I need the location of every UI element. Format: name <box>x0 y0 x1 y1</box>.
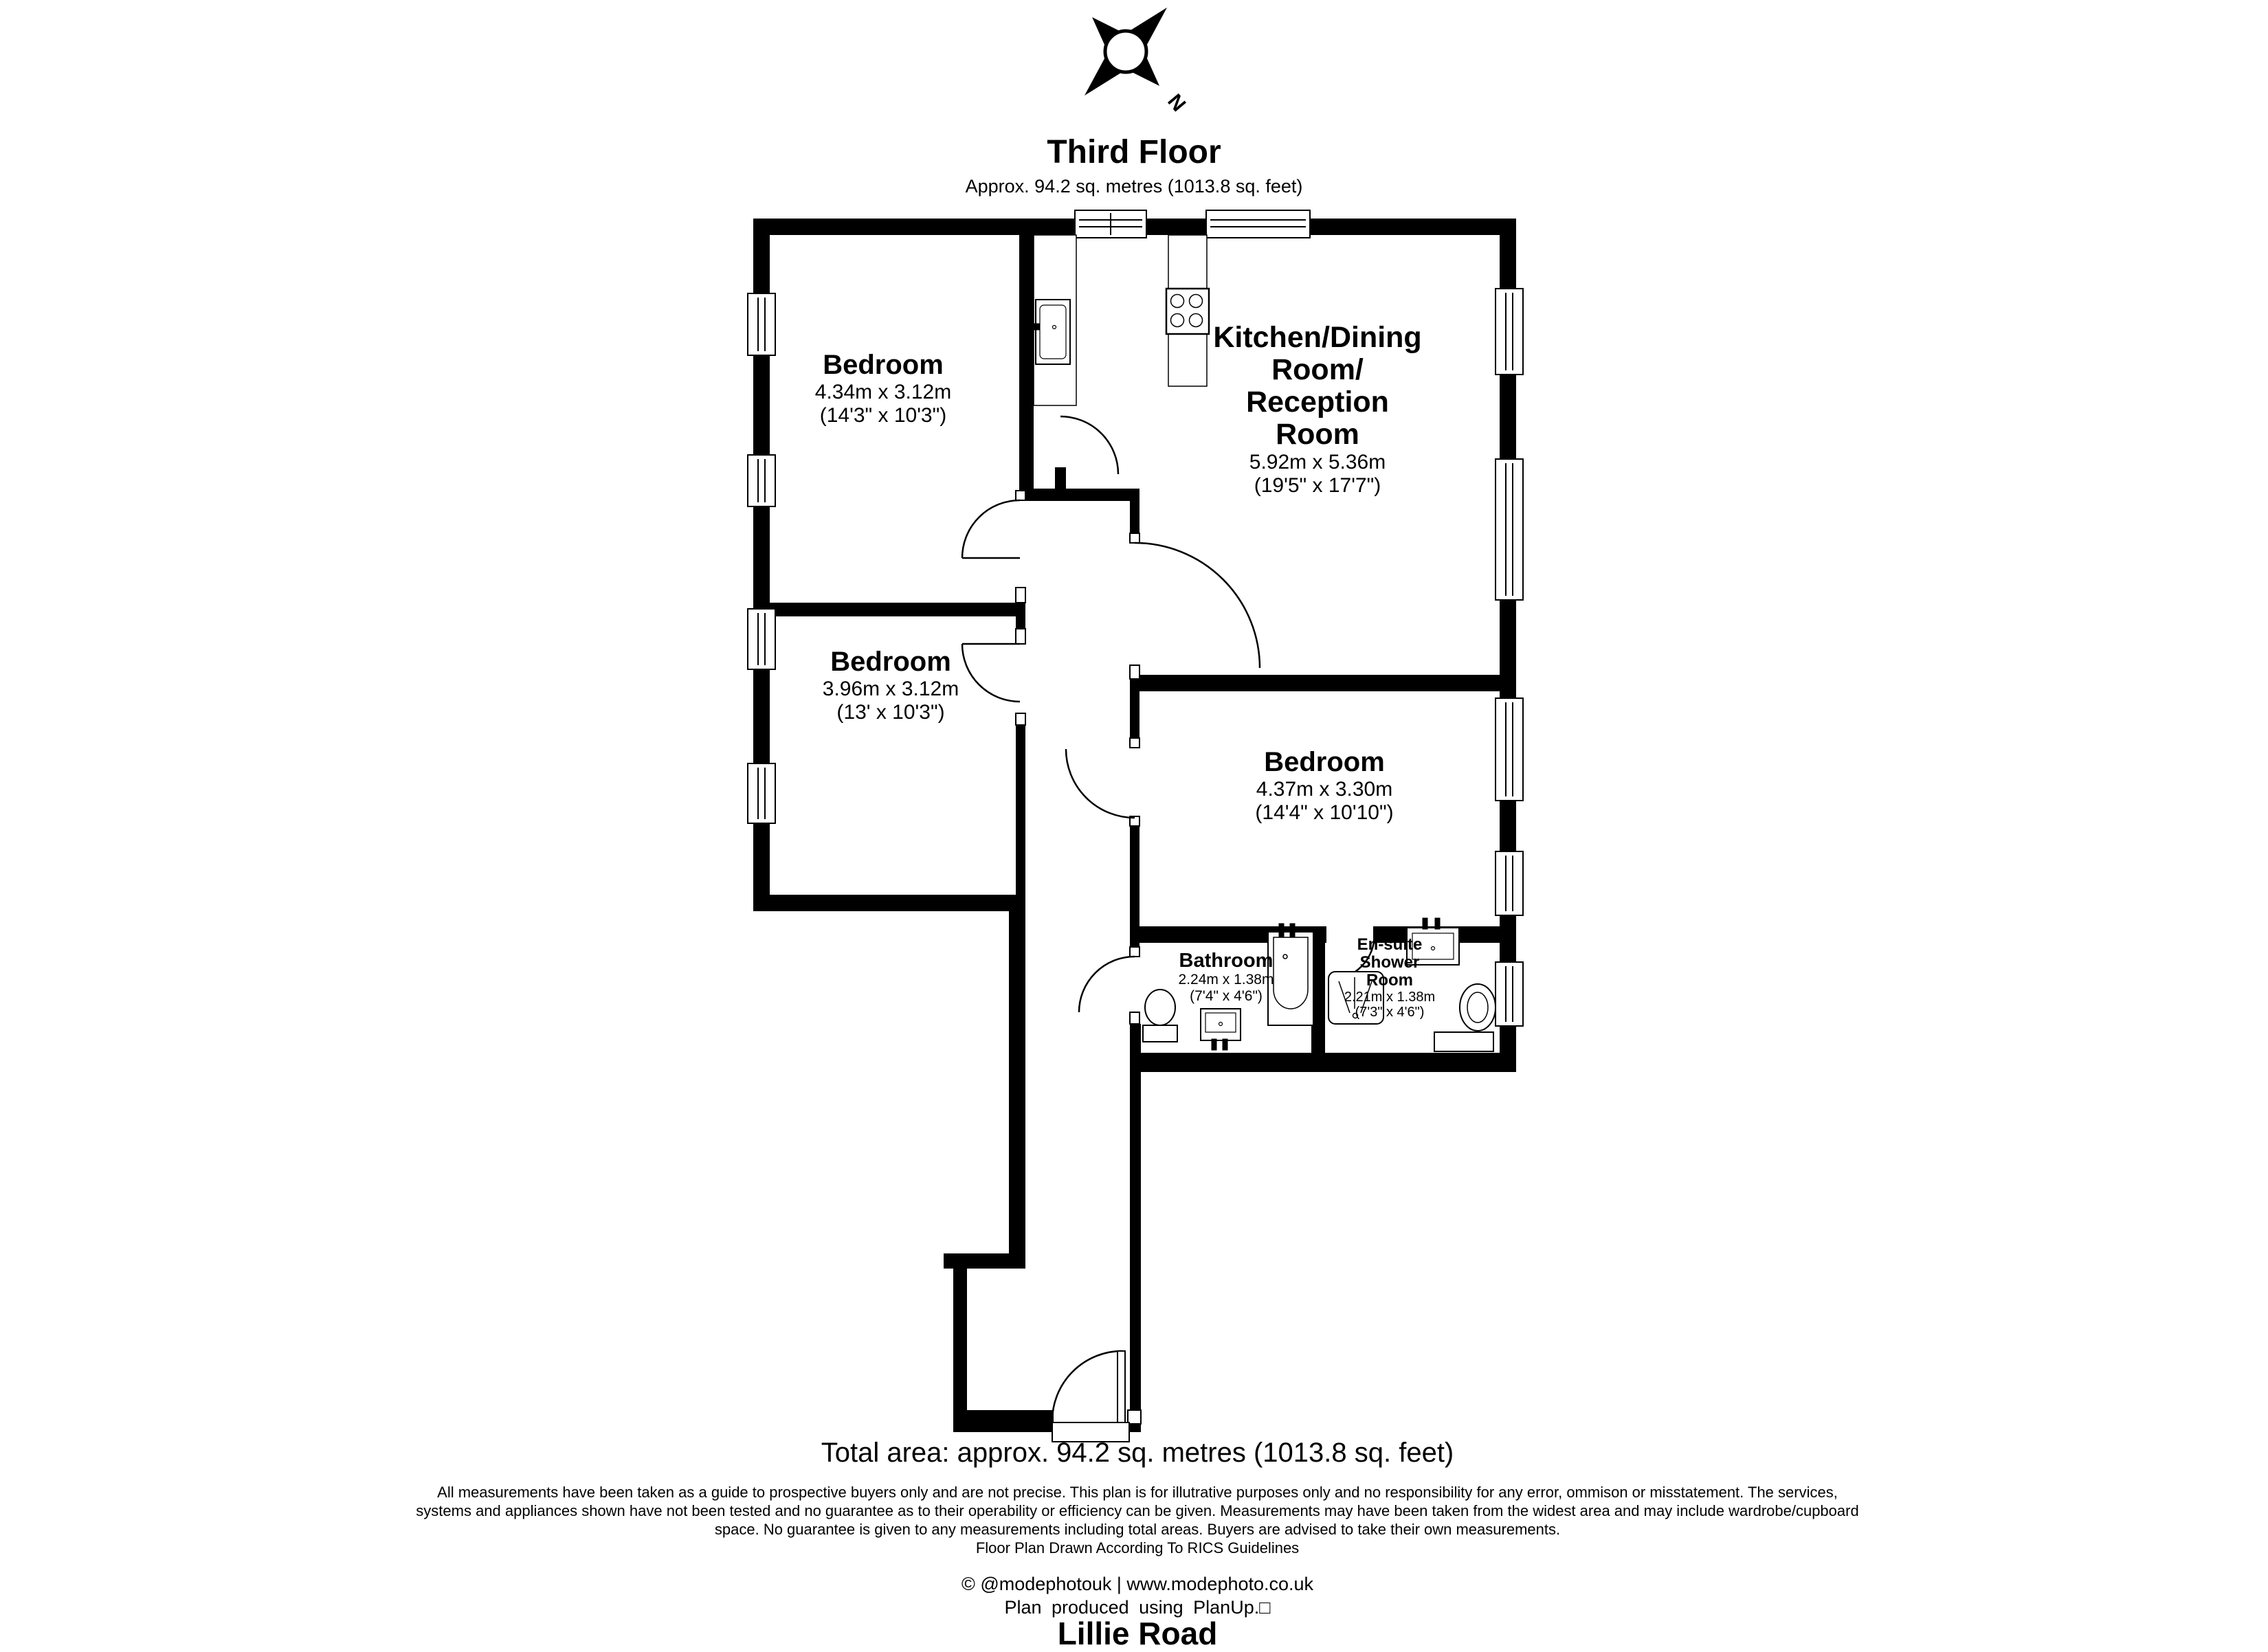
rics-guidelines-text: Floor Plan Drawn According To RICS Guide… <box>976 1539 1299 1557</box>
door-arc-bedroom-3 <box>1066 749 1135 818</box>
toilet-icon <box>1143 990 1177 1042</box>
compass-icon: N <box>1085 8 1190 116</box>
window-top-1 <box>1075 210 1146 238</box>
total-area-text: Total area: approx. 94.2 sq. metres (101… <box>821 1438 1454 1469</box>
room-dims-imperial: (14'4" x 10'10") <box>1255 801 1393 825</box>
room-label-bathroom: Bathroom 2.24m x 1.38m (7'4" x 4'6") <box>1179 950 1274 1005</box>
door-arc-kitchen <box>1135 543 1260 668</box>
door-arc-bathroom <box>1079 957 1135 1012</box>
hob-icon <box>1166 289 1209 334</box>
window-right-5 <box>1496 962 1523 1026</box>
floor-plan-drawing: N <box>0 0 2268 1649</box>
room-name: Bedroom <box>823 646 959 678</box>
room-name: Bedroom <box>1255 746 1393 778</box>
window-right-2 <box>1496 459 1523 600</box>
floor-plan-page: N <box>0 0 2268 1649</box>
room-label-kitchen: Kitchen/Dining Room/ Reception Room 5.92… <box>1213 322 1421 498</box>
window-left-1 <box>748 293 775 355</box>
room-label-bedroom-2: Bedroom 3.96m x 3.12m (13' x 10'3") <box>823 646 959 724</box>
basin-icon <box>1201 1009 1241 1050</box>
bathtub-icon <box>1268 924 1313 1025</box>
room-name: Room <box>1344 972 1435 990</box>
window-right-1 <box>1496 289 1523 375</box>
room-label-bedroom-1: Bedroom 4.34m x 3.12m (14'3" x 10'3") <box>815 349 951 427</box>
room-dims-metric: 5.92m x 5.36m <box>1213 451 1421 474</box>
kitchen-fixtures <box>1030 235 1209 405</box>
room-name: Reception <box>1213 386 1421 418</box>
room-dims-metric: 4.34m x 3.12m <box>815 381 951 404</box>
room-dims-imperial: (14'3" x 10'3") <box>815 404 951 427</box>
room-name: En-suite <box>1344 936 1435 954</box>
room-dims-imperial: (19'5" x 17'7") <box>1213 474 1421 498</box>
window-right-3 <box>1496 698 1523 801</box>
room-name: Bathroom <box>1179 950 1274 972</box>
svg-text:N: N <box>1163 90 1190 116</box>
door-arc-bedroom-1 <box>962 500 1020 558</box>
room-label-ensuite: En-suite Shower Room 2.21m x 1.38m (7'3"… <box>1344 936 1435 1020</box>
window-right-4 <box>1496 851 1523 915</box>
room-name: Room/ <box>1213 354 1421 386</box>
room-name: Room <box>1213 418 1421 451</box>
window-left-4 <box>748 763 775 823</box>
room-dims-imperial: (7'3" x 4'6") <box>1344 1005 1435 1020</box>
page-subtitle: Approx. 94.2 sq. metres (1013.8 sq. feet… <box>966 176 1303 197</box>
disclaimer-text: All measurements have been taken as a gu… <box>416 1483 1858 1539</box>
page-title: Third Floor <box>1047 133 1221 171</box>
room-name: Bedroom <box>815 349 951 381</box>
disclaimer-line: space. No guarantee is given to any meas… <box>416 1520 1858 1539</box>
disclaimer-line: All measurements have been taken as a gu… <box>416 1483 1858 1502</box>
street-address: Lillie Road <box>1058 1615 1218 1652</box>
ensuite-toilet-icon <box>1434 984 1496 1051</box>
room-dims-imperial: (13' x 10'3") <box>823 701 959 724</box>
room-dims-imperial: (7'4" x 4'6") <box>1179 988 1274 1005</box>
room-name: Kitchen/Dining <box>1213 322 1421 354</box>
room-name: Shower <box>1344 954 1435 972</box>
door-arc-kitchen-nook <box>1060 416 1118 474</box>
window-left-2 <box>748 455 775 506</box>
room-dims-metric: 2.21m x 1.38m <box>1344 990 1435 1005</box>
door-arc-bedroom-2 <box>962 644 1020 702</box>
window-left-3 <box>748 609 775 669</box>
room-dims-metric: 3.96m x 3.12m <box>823 678 959 701</box>
entry-door <box>1052 1351 1129 1442</box>
room-dims-metric: 2.24m x 1.38m <box>1179 972 1274 988</box>
kitchen-sink-icon <box>1030 300 1070 364</box>
credit-text: © @modephotouk | www.modephoto.co.uk <box>961 1574 1313 1595</box>
room-label-bedroom-3: Bedroom 4.37m x 3.30m (14'4" x 10'10") <box>1255 746 1393 825</box>
window-top-2 <box>1206 210 1310 238</box>
disclaimer-line: systems and appliances shown have not be… <box>416 1502 1858 1520</box>
room-dims-metric: 4.37m x 3.30m <box>1255 778 1393 801</box>
